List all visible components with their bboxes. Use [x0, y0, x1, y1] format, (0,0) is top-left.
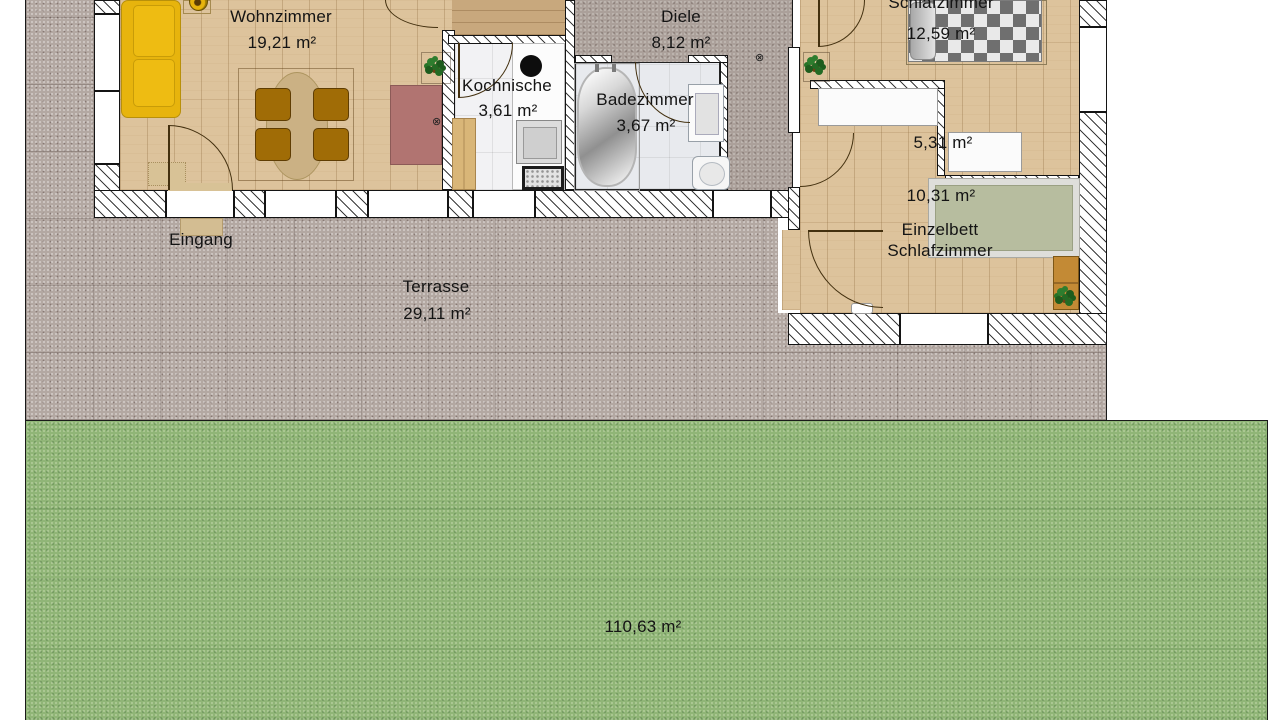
room-label-kochnische: Kochnische: [462, 76, 552, 96]
floorplan-canvas: ⊗ ⊗ Wohnzimmer 19,21 m² Diele 8,1: [0, 0, 1280, 720]
entry-door-opening: [166, 190, 234, 218]
wall-segment: [1079, 0, 1107, 27]
appliance-detail: [523, 127, 557, 159]
smoke-detector-icon: ⊗: [432, 117, 441, 128]
window: [94, 14, 120, 91]
wall-segment: [448, 190, 473, 218]
sofa: [121, 0, 181, 118]
door-opening-floor: [782, 230, 800, 310]
smoke-detector-icon: ⊗: [755, 53, 764, 64]
kitchen-appliance: [516, 120, 562, 164]
kitchen-sink: [520, 55, 542, 77]
bathtub-tap: [595, 64, 599, 72]
room-label-schlafzimmer: Schlafzimmer: [888, 0, 993, 13]
wall-segment: [94, 0, 120, 14]
room-label-einzelbett-line1: Einzelbett: [902, 220, 979, 239]
room-area-diele: 8,12 m²: [651, 33, 710, 53]
nightstand: [1053, 256, 1079, 310]
chair: [255, 128, 291, 161]
wall-segment: [94, 190, 166, 218]
wall-segment: [788, 187, 800, 230]
wall-bath-top: [575, 55, 612, 63]
room-label-einzelbett: Einzelbett Schlafzimmer: [875, 219, 1005, 261]
sink-basin: [695, 93, 719, 135]
wardrobe: [818, 88, 938, 126]
room-area-flur: 5,31 m²: [913, 133, 972, 153]
plant-icon: [812, 63, 818, 69]
kitchen-cabinet-wood: [452, 118, 476, 190]
window: [713, 190, 771, 218]
wall-segment: [988, 313, 1107, 345]
wall-segment: [788, 313, 900, 345]
room-label-einzelbett-line2: Schlafzimmer: [887, 241, 992, 260]
room-area-badezimmer: 3,67 m²: [616, 116, 675, 136]
window: [788, 47, 800, 133]
wall-segment: [1079, 112, 1107, 345]
hall-floor: [452, 0, 570, 35]
area-terrasse: 29,11 m²: [403, 304, 470, 324]
toilet-seat: [699, 162, 725, 186]
window: [368, 190, 448, 218]
chair: [255, 88, 291, 121]
window: [265, 190, 336, 218]
sofa-cushion: [133, 5, 175, 57]
room-area-kochnische: 3,61 m²: [478, 101, 537, 121]
wall-segment: [535, 190, 713, 218]
label-terrasse: Terrasse: [403, 277, 470, 297]
window: [94, 91, 120, 164]
wall-corridor-vertical: [937, 88, 945, 176]
wall-segment: [336, 190, 368, 218]
hallway-floor-column: [728, 0, 793, 190]
wall-segment: [234, 190, 265, 218]
kitchen-stove: [522, 166, 564, 190]
room-label-badezimmer: Badezimmer: [596, 90, 693, 110]
garden-surface: [25, 420, 1268, 720]
window: [473, 190, 535, 218]
window: [900, 313, 988, 345]
plant-icon: [1062, 294, 1068, 300]
chair: [313, 88, 349, 121]
room-label-wohnzimmer: Wohnzimmer: [230, 7, 332, 27]
room-label-diele: Diele: [661, 7, 701, 27]
room-area-schlafzimmer: 12,59 m²: [907, 24, 976, 44]
plant-icon: [432, 64, 438, 70]
window: [1079, 27, 1107, 112]
sofa-cushion: [133, 59, 175, 107]
room-area-wohnzimmer: 19,21 m²: [248, 33, 317, 53]
toilet: [692, 156, 730, 190]
label-eingang: Eingang: [169, 230, 233, 250]
room-area-einzelbett: 10,31 m²: [907, 186, 976, 206]
area-garten: 110,63 m²: [604, 617, 681, 637]
chair: [313, 128, 349, 161]
bathtub-tap: [612, 64, 616, 72]
